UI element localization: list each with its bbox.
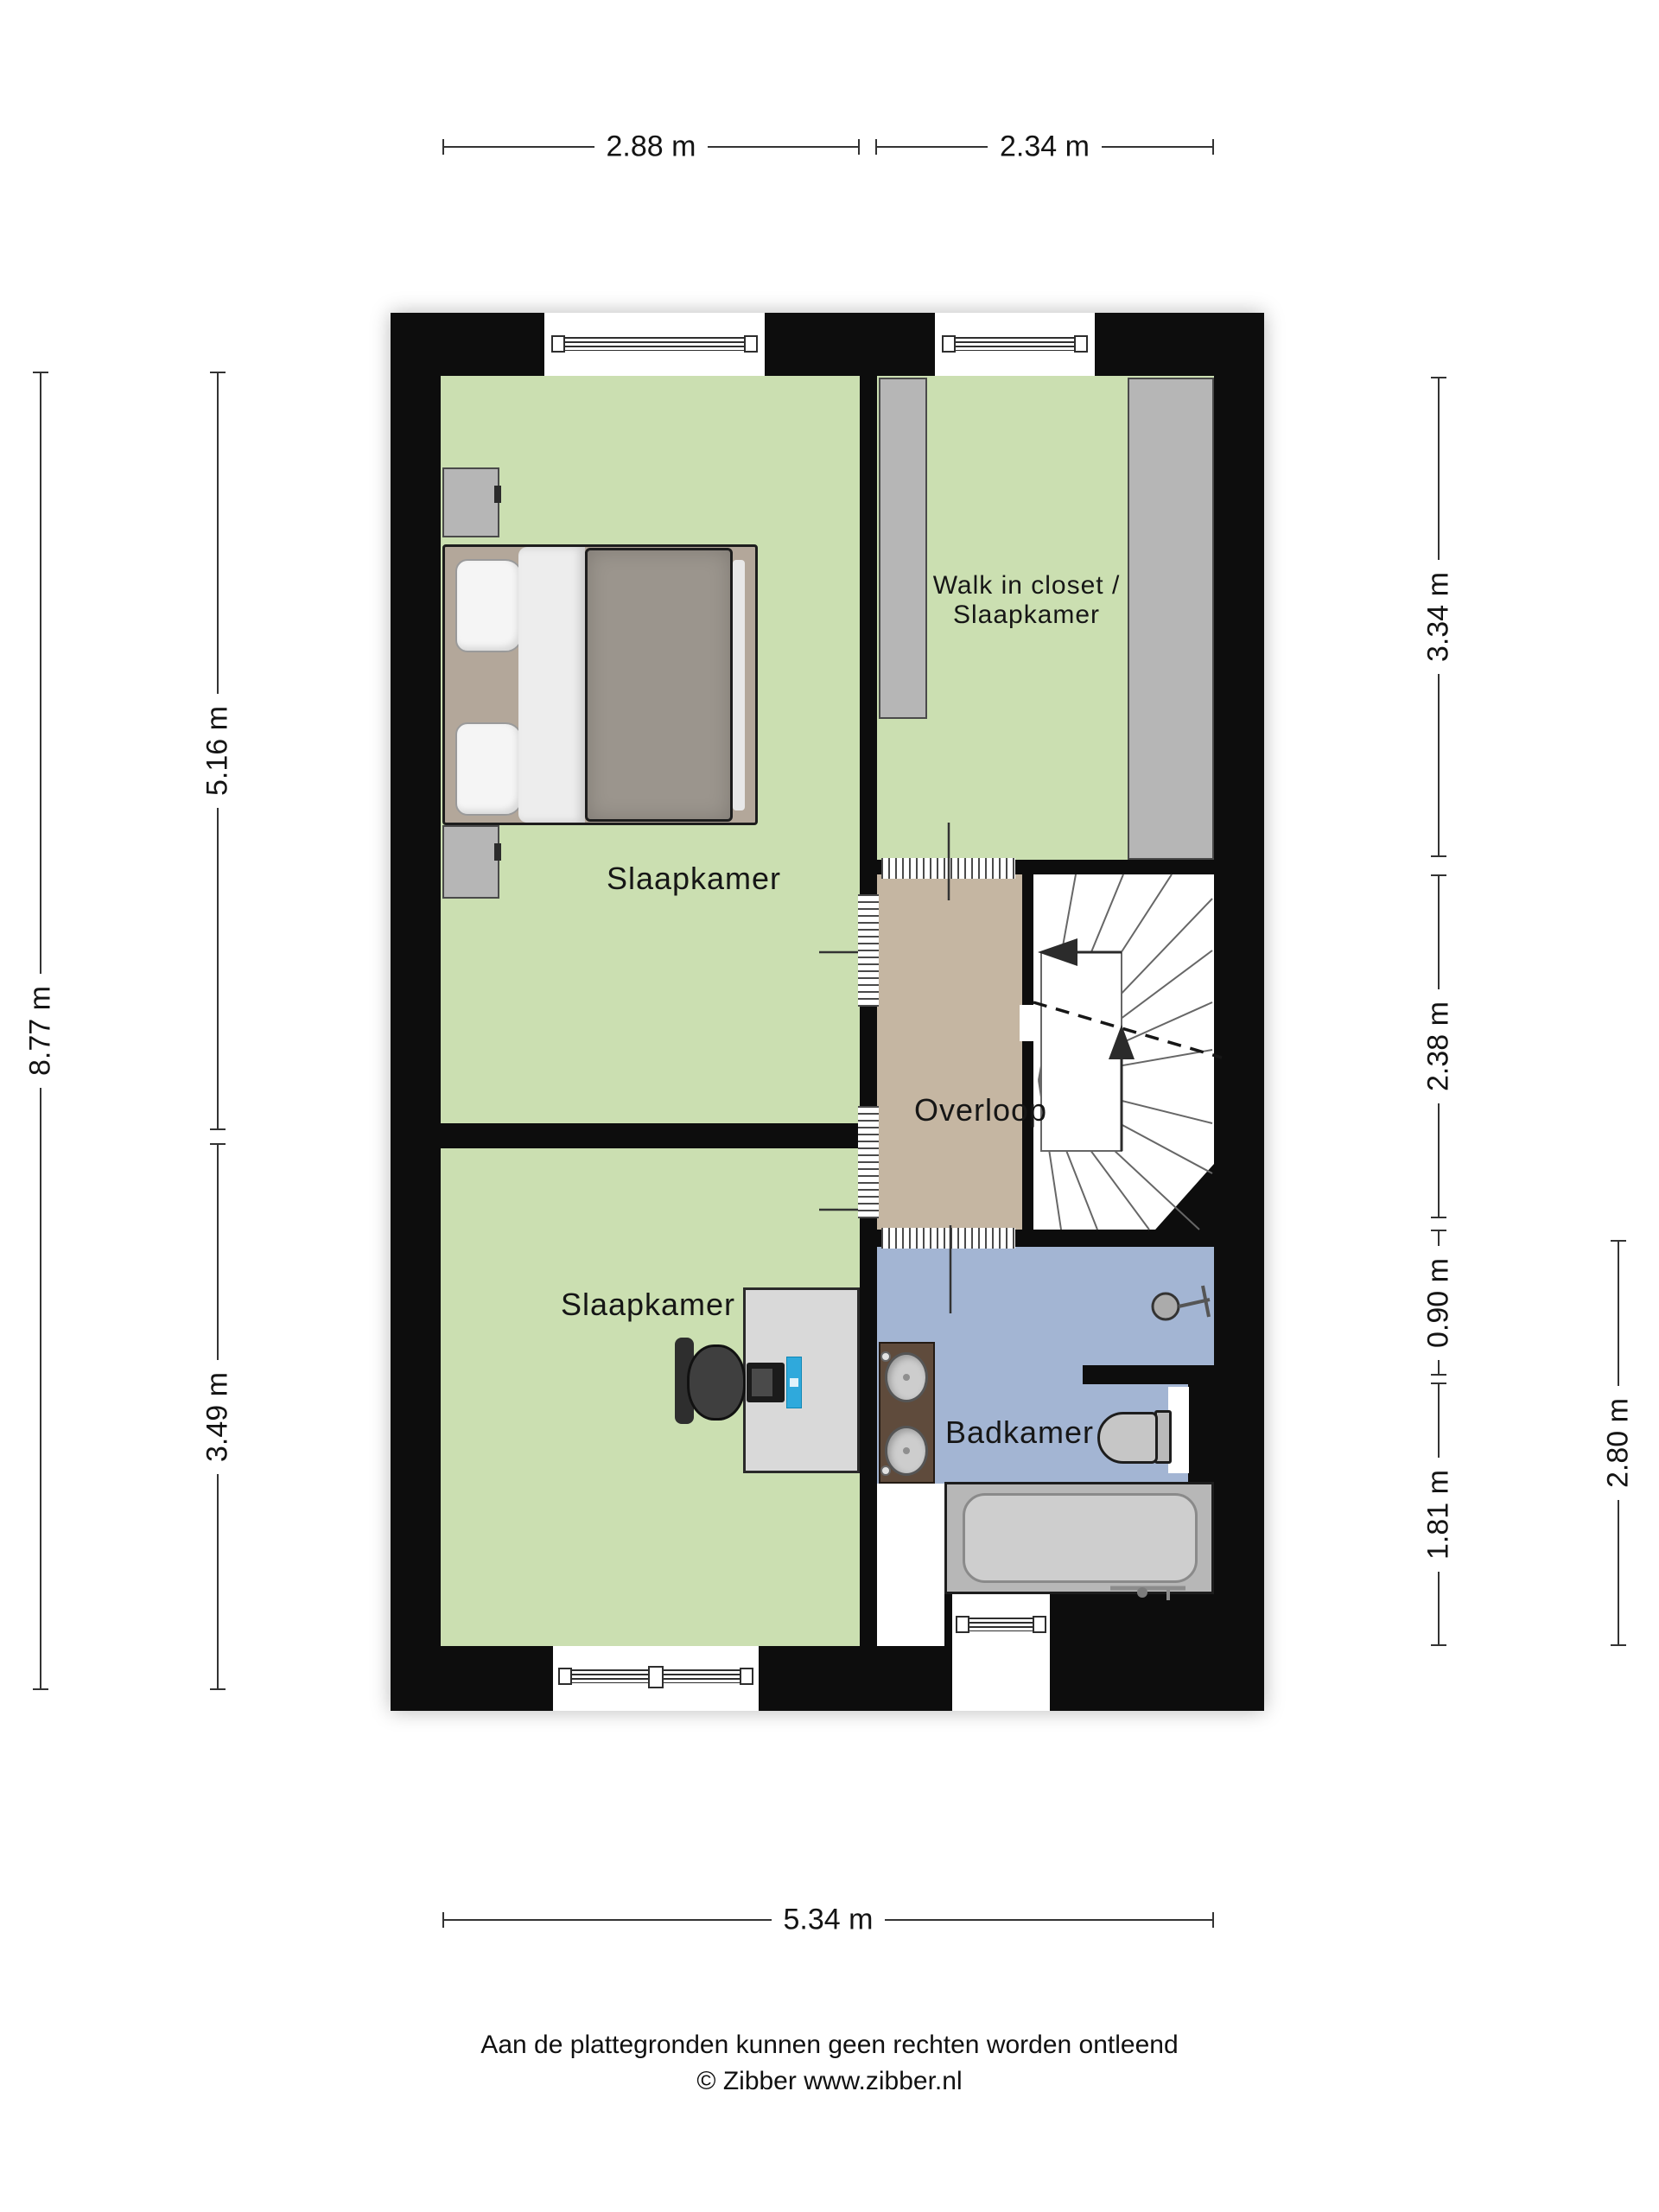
window-glazing-icon <box>957 1618 1045 1631</box>
room-landing-floor <box>877 874 1022 1230</box>
dimension-right-bathroom-total: 2.80 m <box>1618 1240 1619 1646</box>
dimension-label: 2.88 m <box>594 129 709 166</box>
dimension-left-upper: 5.16 m <box>217 372 219 1130</box>
room-label-bedroom-bottom: Slaapkamer <box>561 1287 735 1323</box>
dimension-label: 0.90 m <box>1421 1246 1458 1360</box>
dimension-top-right: 2.34 m <box>875 146 1214 148</box>
room-label-closet-line1: Walk in closet / <box>933 571 1121 601</box>
room-label-bedroom-top: Slaapkamer <box>607 861 781 897</box>
dimension-label: 1.81 m <box>1421 1458 1458 1572</box>
dimension-label: 5.16 m <box>200 694 237 808</box>
toilet-icon <box>1097 1412 1158 1464</box>
laptop-screen-icon <box>752 1369 772 1396</box>
sink-icon <box>885 1352 928 1402</box>
dimension-left-lower: 3.49 m <box>217 1143 219 1690</box>
window-top-bedroom <box>544 313 765 376</box>
dimension-label: 3.49 m <box>200 1360 237 1474</box>
dimension-label: 2.34 m <box>988 129 1102 166</box>
dimension-label: 8.77 m <box>22 974 60 1088</box>
opening-landing-stairs <box>1020 1005 1035 1041</box>
floorplan-page: 2.88 m 2.34 m 8.77 m 5.16 m 3.49 m 3.34 … <box>0 0 1659 2212</box>
monitor-icon <box>786 1357 802 1408</box>
window-bottom-bedroom <box>553 1646 759 1711</box>
pillow-icon <box>455 722 523 816</box>
wardrobe-icon <box>879 378 927 719</box>
pillow-icon <box>455 559 523 652</box>
door-bedroom-top-landing <box>858 894 879 1007</box>
door-closet-landing <box>881 858 1015 879</box>
footer-disclaimer: Aan de plattegronden kunnen geen rechten… <box>480 2031 1178 2060</box>
dimension-label: 2.38 m <box>1421 989 1458 1103</box>
nightstand-handle-icon <box>494 486 501 503</box>
dimension-right-closet: 3.34 m <box>1438 377 1440 857</box>
bed-sheet-icon <box>518 547 585 823</box>
dimension-label: 5.34 m <box>772 1902 886 1939</box>
window-mullion-icon <box>648 1666 664 1688</box>
dimension-right-bath: 1.81 m <box>1438 1382 1440 1646</box>
nightstand-icon <box>442 467 499 537</box>
stairs <box>1033 874 1214 1230</box>
window-glazing-icon <box>944 337 1086 351</box>
wardrobe-icon <box>1128 378 1214 860</box>
nightstand-icon <box>442 825 499 899</box>
laptop-icon <box>747 1363 785 1402</box>
door-landing-bathroom <box>881 1228 1015 1249</box>
sink-icon <box>885 1426 928 1476</box>
room-label-closet-line2: Slaapkamer <box>953 601 1100 630</box>
bathtub-icon <box>944 1482 1214 1594</box>
dimension-left-total: 8.77 m <box>40 372 41 1690</box>
door-bedroom-bottom-landing <box>858 1106 879 1218</box>
bed-fold-icon <box>733 560 745 810</box>
room-label-landing: Overloop <box>914 1092 1047 1128</box>
bathroom-stub-wall <box>1083 1365 1214 1384</box>
office-chair-icon <box>687 1344 746 1421</box>
window-bottom-bathroom <box>952 1594 1050 1711</box>
window-glazing-icon <box>553 337 756 351</box>
nightstand-handle-icon <box>494 843 501 861</box>
bathtub-basin-icon <box>963 1493 1198 1583</box>
footer-copyright: © Zibber www.zibber.nl <box>696 2067 962 2096</box>
dimension-right-landing: 2.38 m <box>1438 874 1440 1218</box>
dimension-label: 2.80 m <box>1600 1386 1637 1500</box>
duvet-icon <box>585 548 733 822</box>
dimension-bottom: 5.34 m <box>442 1919 1214 1921</box>
bathroom-shower-tray <box>877 1484 944 1646</box>
dimension-top-left: 2.88 m <box>442 146 860 148</box>
bathroom-right-wall-block <box>1188 1382 1264 1482</box>
dimension-label: 3.34 m <box>1421 560 1458 674</box>
dimension-right-shower: 0.90 m <box>1438 1230 1440 1376</box>
window-top-closet <box>935 313 1095 376</box>
room-label-bathroom: Badkamer <box>945 1414 1094 1451</box>
